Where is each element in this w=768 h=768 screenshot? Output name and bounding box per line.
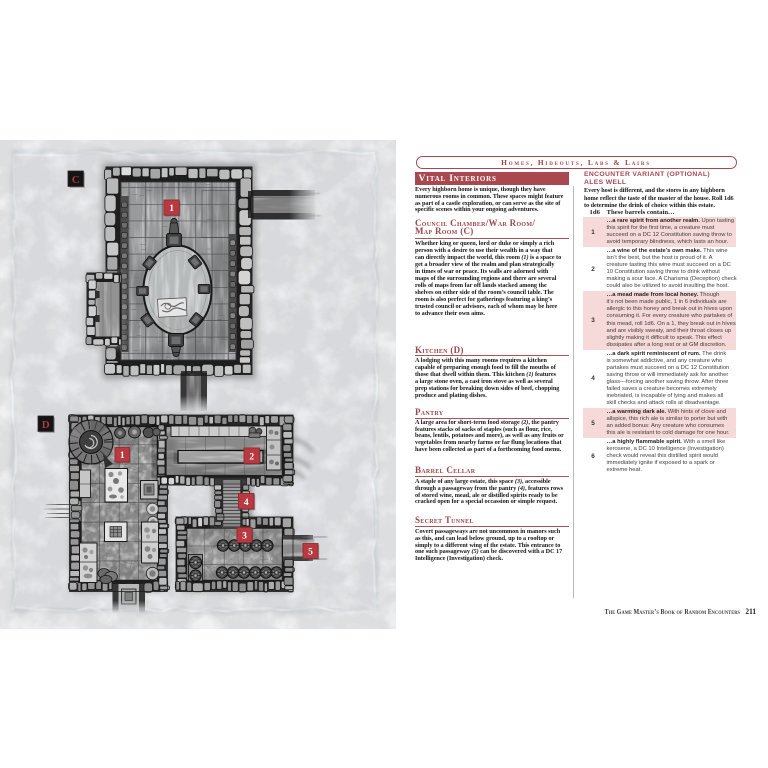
svg-text:2: 2 <box>249 452 254 462</box>
svg-text:3: 3 <box>242 531 247 541</box>
svg-text:1: 1 <box>169 204 174 214</box>
svg-text:5: 5 <box>308 547 313 557</box>
svg-text:D: D <box>42 419 50 431</box>
svg-text:4: 4 <box>244 498 249 508</box>
svg-text:C: C <box>72 174 80 186</box>
svg-text:1: 1 <box>120 451 125 461</box>
